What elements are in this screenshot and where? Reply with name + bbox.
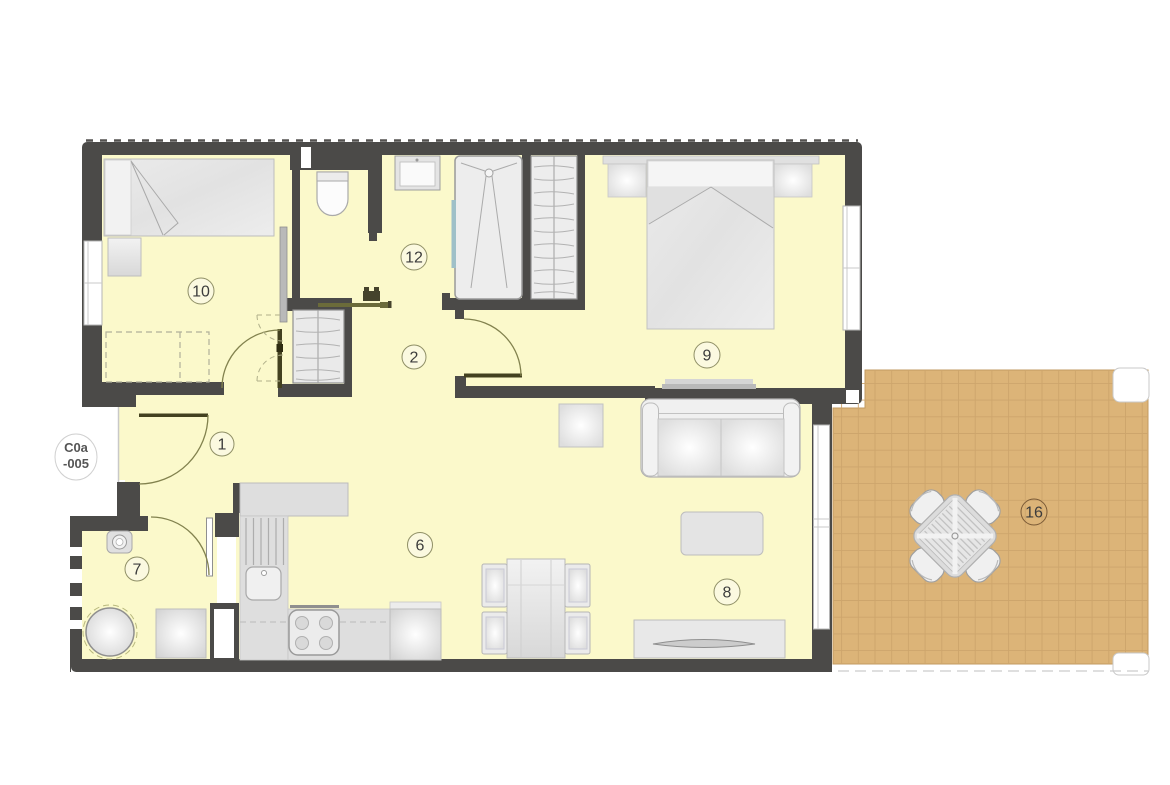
svg-text:12: 12	[405, 250, 423, 267]
svg-text:8: 8	[723, 585, 732, 602]
svg-text:10: 10	[192, 284, 210, 301]
svg-text:6: 6	[416, 538, 425, 555]
svg-text:9: 9	[703, 348, 712, 365]
svg-text:2: 2	[410, 350, 419, 367]
svg-text:7: 7	[133, 562, 142, 579]
svg-text:C0a: C0a	[64, 440, 89, 455]
svg-text:-005: -005	[63, 456, 89, 471]
svg-text:1: 1	[218, 437, 227, 454]
svg-text:16: 16	[1025, 505, 1043, 522]
